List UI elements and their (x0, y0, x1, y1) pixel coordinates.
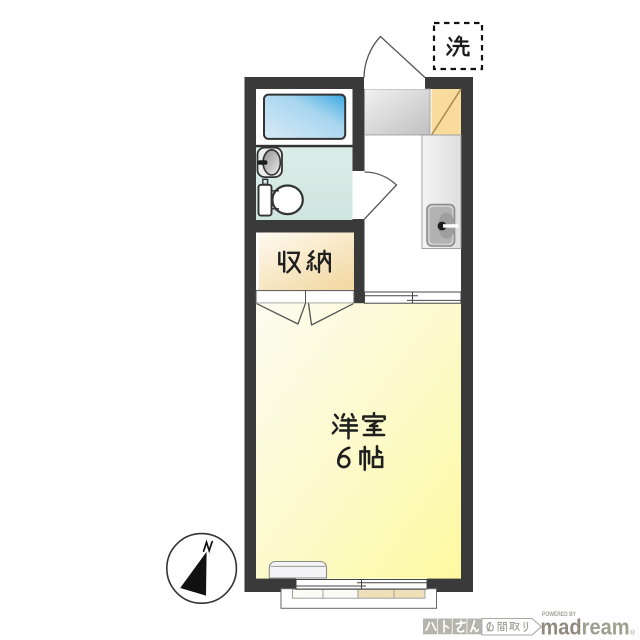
svg-text:®: ® (630, 629, 636, 637)
svg-text:madream: madream (541, 615, 630, 640)
